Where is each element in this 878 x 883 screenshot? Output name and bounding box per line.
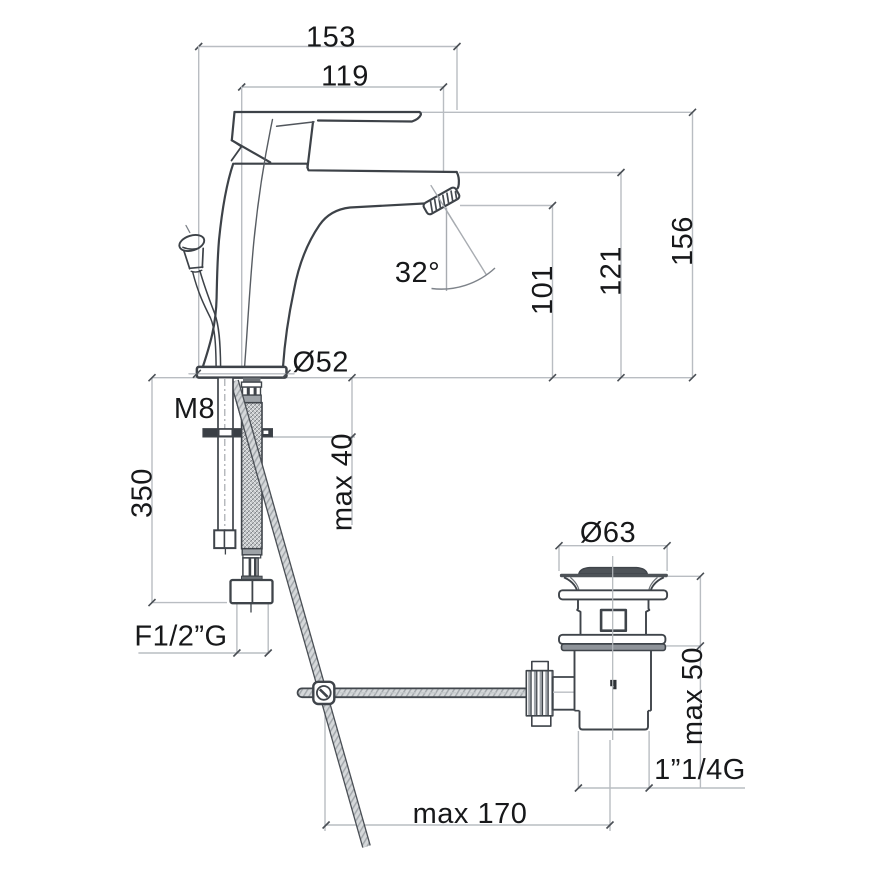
svg-text:max 170: max 170 xyxy=(413,798,528,830)
svg-text:101: 101 xyxy=(527,265,559,315)
svg-text:121: 121 xyxy=(596,246,628,296)
svg-text:max 40: max 40 xyxy=(327,433,359,531)
svg-text:F1/2”G: F1/2”G xyxy=(134,621,227,653)
svg-text:119: 119 xyxy=(321,61,369,93)
svg-text:350: 350 xyxy=(127,468,159,518)
svg-text:156: 156 xyxy=(667,216,699,266)
svg-text:M8: M8 xyxy=(174,393,215,425)
svg-text:153: 153 xyxy=(306,22,356,54)
svg-text:1”1/4G: 1”1/4G xyxy=(654,754,746,786)
svg-text:max 50: max 50 xyxy=(677,647,709,745)
svg-text:Ø52: Ø52 xyxy=(293,347,349,379)
svg-text:Ø63: Ø63 xyxy=(580,517,636,549)
svg-text:32°: 32° xyxy=(395,257,440,289)
